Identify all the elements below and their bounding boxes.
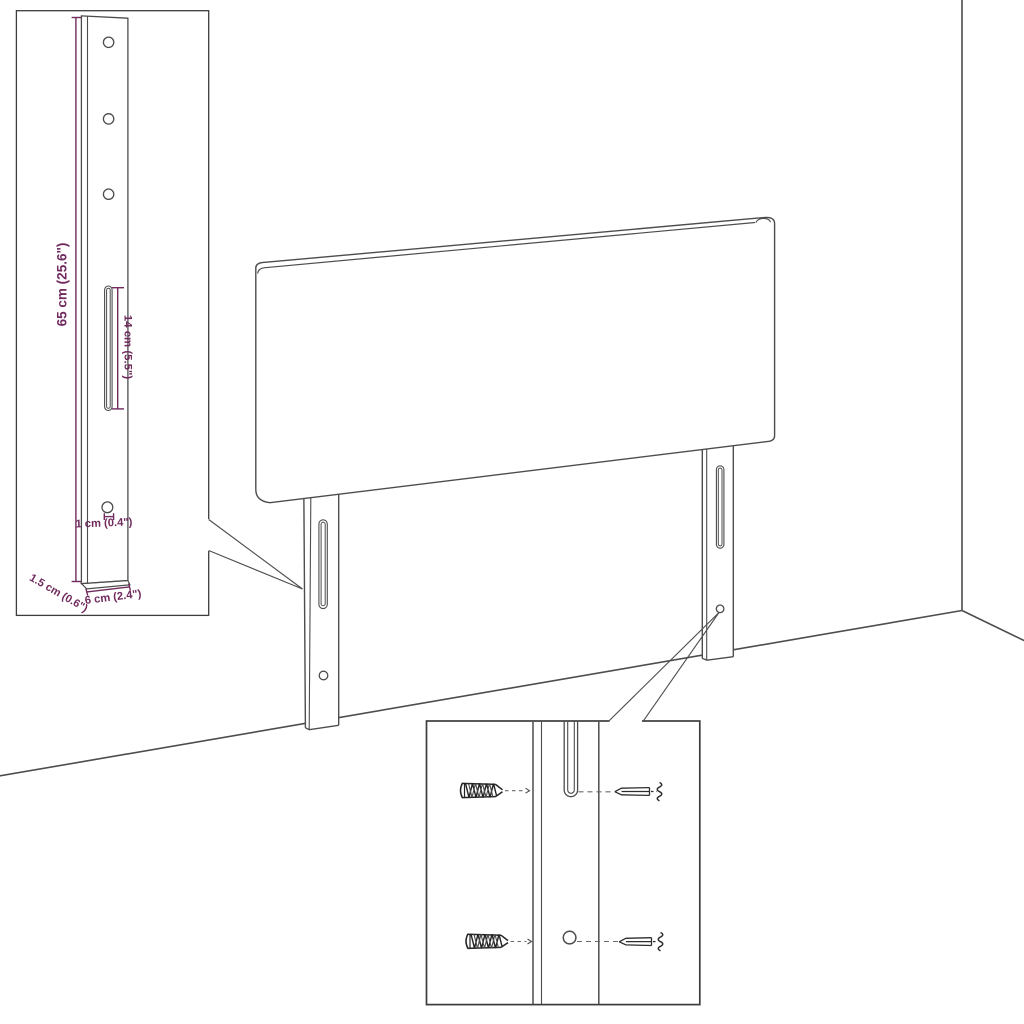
svg-text:14 cm (5.5"): 14 cm (5.5") [121,315,133,379]
svg-text:65 cm (25.6"): 65 cm (25.6") [55,243,70,327]
svg-text:1 cm (0.4"): 1 cm (0.4") [75,517,133,531]
